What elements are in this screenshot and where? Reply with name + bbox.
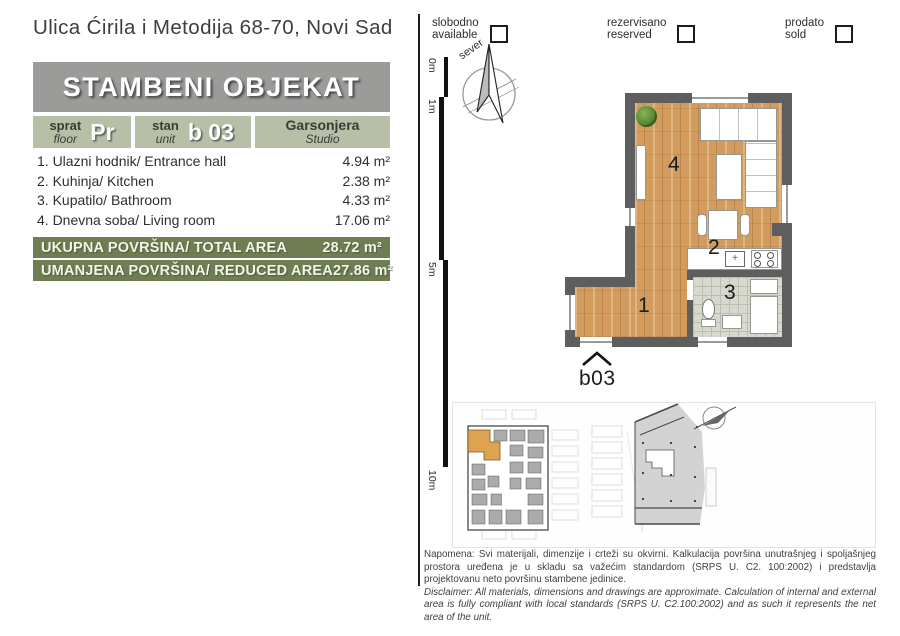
total-area-bar: UKUPNA POVRŠINA/ TOTAL AREA 28.72 m² xyxy=(33,237,390,258)
room-label: 1. Ulazni hodnik/ Entrance hall xyxy=(37,153,226,173)
floor-label-sr: sprat xyxy=(49,119,81,132)
reduced-area-value: 27.86 m² xyxy=(333,263,393,279)
room-number-living: 4 xyxy=(668,153,680,177)
room-label: 3. Kupatilo/ Bathroom xyxy=(37,192,172,212)
disclaimer: Napomena: Svi materijali, dimenzije i cr… xyxy=(424,549,876,624)
scale-mark-5m: 5m xyxy=(426,262,438,277)
kitchen-sink: + xyxy=(725,251,745,267)
unit-spec-row: sprat floor Pr stan unit b 03 Garsonjera… xyxy=(33,116,390,148)
scalebar-segment-0-1m xyxy=(444,57,448,97)
floor-value: Pr xyxy=(90,119,114,146)
unit-label-sr: stan xyxy=(152,119,179,132)
room-area: 17.06 m² xyxy=(335,212,390,232)
apartment-type-box: Garsonjera Studio xyxy=(255,116,390,148)
scale-mark-1m: 1m xyxy=(426,99,438,114)
disclaimer-english: Disclaimer: All materials, dimensions an… xyxy=(424,587,876,623)
shelf xyxy=(636,145,646,200)
room-row-living: 4. Dnevna soba/ Living room 17.06 m² xyxy=(37,212,390,232)
compass-north-label: sever xyxy=(457,38,486,62)
vertical-divider xyxy=(418,14,420,586)
legend-sold-sr: prodato xyxy=(785,17,824,29)
scale-mark-0m: 0m xyxy=(426,58,438,73)
window-ext-left xyxy=(565,295,575,330)
legend-reserved: rezervisano reserved xyxy=(607,17,695,43)
stove xyxy=(751,250,778,268)
room-number-kitchen: 2 xyxy=(708,236,720,260)
window-bottom xyxy=(698,337,727,347)
scale-mark-10m: 10m xyxy=(426,470,438,490)
wall-stub-right xyxy=(772,223,792,236)
bathroom-cabinet xyxy=(750,279,778,294)
reduced-area-label: UMANJENA POVRŠINA/ REDUCED AREA xyxy=(41,263,333,279)
reserved-checkbox[interactable] xyxy=(677,25,695,43)
flyer-page: Ulica Ćirila i Metodija 68-70, Novi Sad … xyxy=(0,0,900,636)
window-right xyxy=(782,185,792,223)
unit-value: b 03 xyxy=(188,119,234,146)
window-top xyxy=(692,93,748,103)
room-label: 2. Kuhinja/ Kitchen xyxy=(37,173,154,193)
building-banner: STAMBENI OBJEKAT xyxy=(33,62,390,112)
room-area: 4.33 m² xyxy=(343,192,390,212)
window-left-small xyxy=(625,208,635,226)
room-label: 4. Dnevna soba/ Living room xyxy=(37,212,215,232)
room-number-bathroom: 3 xyxy=(724,281,736,305)
page-title: Ulica Ćirila i Metodija 68-70, Novi Sad xyxy=(33,16,413,40)
room-row-bathroom: 3. Kupatilo/ Bathroom 4.33 m² xyxy=(37,192,390,212)
sofa-top-segment xyxy=(700,108,777,141)
room-row-hall: 1. Ulazni hodnik/ Entrance hall 4.94 m² xyxy=(37,153,390,173)
apartment-type-en: Studio xyxy=(305,133,339,146)
unit-id-label: b03 xyxy=(579,367,616,391)
apartment-type-sr: Garsonjera xyxy=(286,118,360,133)
unit-box: stan unit b 03 xyxy=(135,116,251,148)
room-area: 4.94 m² xyxy=(343,153,390,173)
floor-box: sprat floor Pr xyxy=(33,116,131,148)
legend-sold-en: sold xyxy=(785,29,824,41)
dining-chair-left xyxy=(697,214,707,236)
room-list: 1. Ulazni hodnik/ Entrance hall 4.94 m² … xyxy=(37,153,390,231)
legend-available-sr: slobodno xyxy=(432,17,479,29)
building-banner-label: STAMBENI OBJEKAT xyxy=(63,72,361,103)
wall-left-main xyxy=(625,93,635,287)
compass-north-icon: sever xyxy=(456,38,526,128)
reduced-area-bar: UMANJENA POVRŠINA/ REDUCED AREA 27.86 m² xyxy=(33,260,390,281)
toilet-icon xyxy=(702,299,715,319)
room-row-kitchen: 2. Kuhinja/ Kitchen 2.38 m² xyxy=(37,173,390,193)
legend-reserved-sr: rezervisano xyxy=(607,17,666,29)
entrance-door-gap xyxy=(580,337,612,347)
sofa-right-segment xyxy=(745,141,777,208)
room-number-hall: 1 xyxy=(638,294,650,318)
room-area: 2.38 m² xyxy=(343,173,390,193)
plant-icon xyxy=(636,106,657,127)
floor-label-en: floor xyxy=(49,133,81,145)
coffee-table xyxy=(716,154,742,200)
scalebar-segment-1-5m xyxy=(439,97,444,260)
entrance-arrow-icon xyxy=(581,351,613,367)
wall-kitchen-bath xyxy=(687,270,782,277)
scalebar-segment-5-10m xyxy=(443,260,448,467)
total-area-value: 28.72 m² xyxy=(322,240,382,256)
legend-reserved-en: reserved xyxy=(607,29,666,41)
disclaimer-serbian: Napomena: Svi materijali, dimenzije i cr… xyxy=(424,549,876,585)
legend-sold: prodato sold xyxy=(785,17,853,43)
toilet-tank xyxy=(701,319,716,327)
bathroom-door-gap xyxy=(687,280,693,300)
unit-floor-plan: + 4 2 3 1 b03 xyxy=(565,93,792,347)
hall-floor-horizontal xyxy=(575,287,635,337)
unit-label-en: unit xyxy=(152,133,179,145)
sold-checkbox[interactable] xyxy=(835,25,853,43)
site-plan xyxy=(452,402,876,548)
dining-chair-right xyxy=(740,214,750,236)
bathroom-sink xyxy=(722,315,742,329)
building-plan-mini xyxy=(468,426,548,530)
total-area-label: UKUPNA POVRŠINA/ TOTAL AREA xyxy=(41,240,287,256)
shower xyxy=(750,296,778,334)
